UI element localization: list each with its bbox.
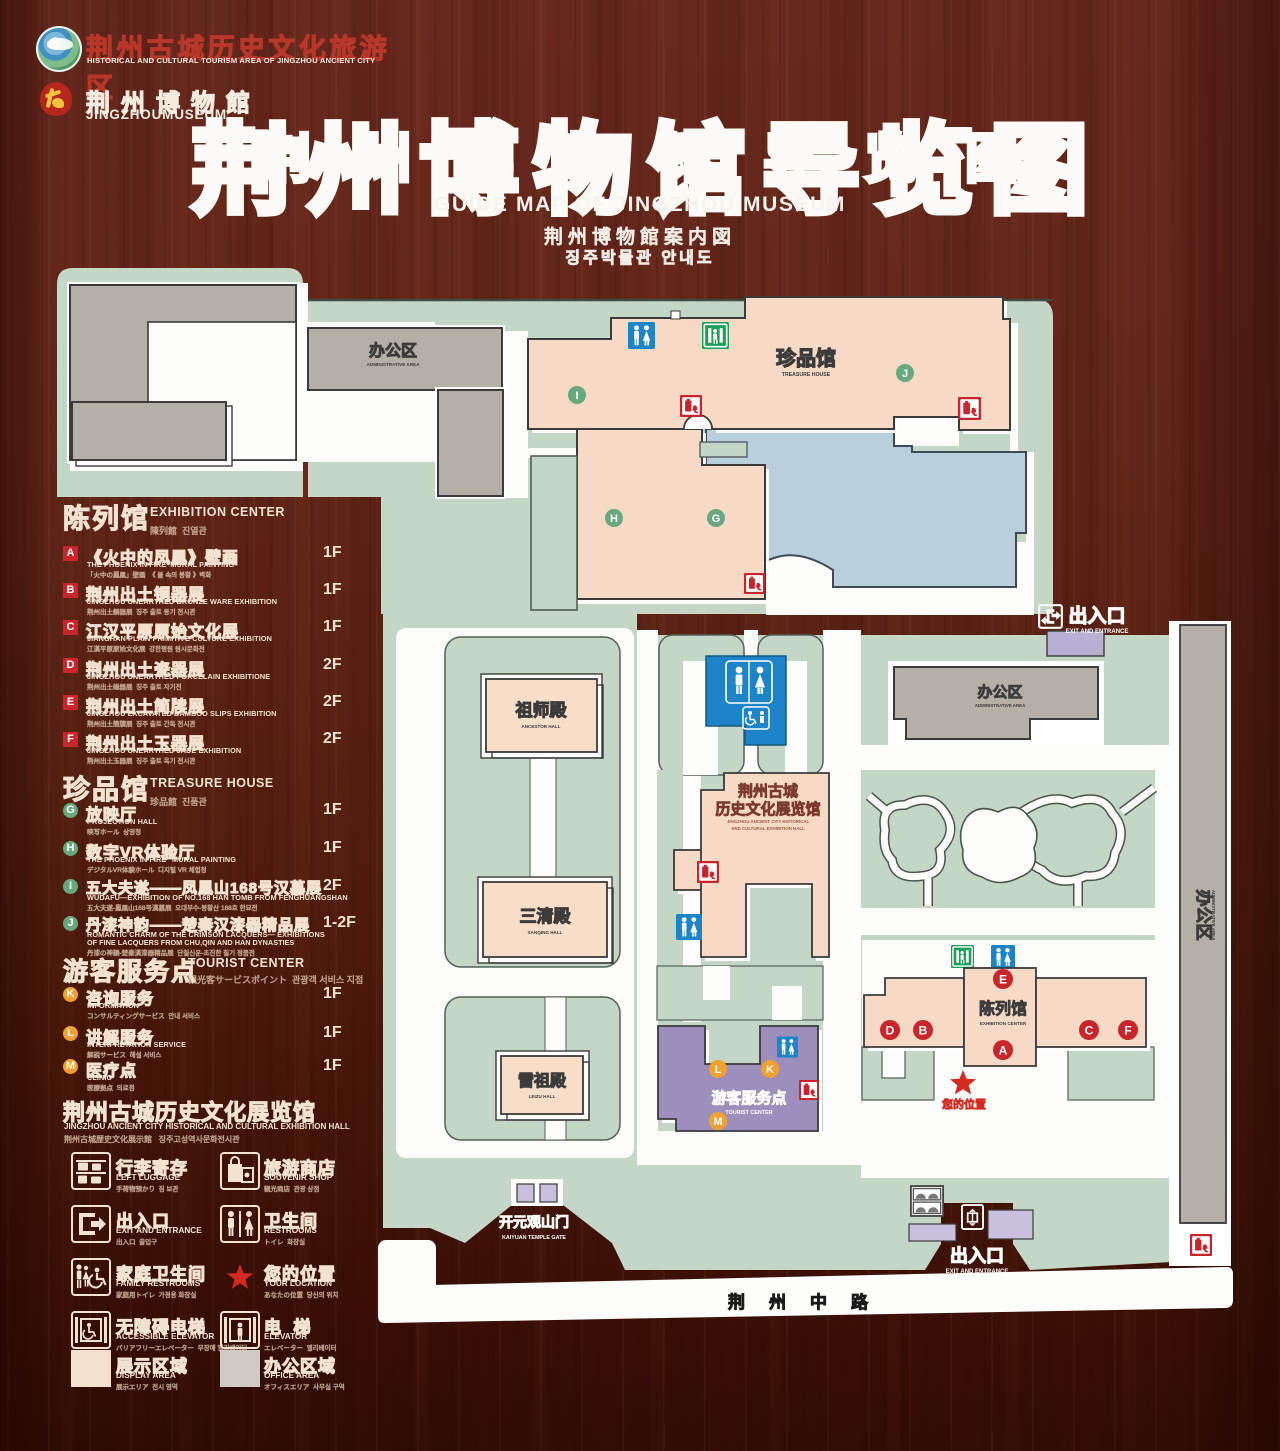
svg-text:珍品馆: 珍品馆 bbox=[776, 346, 836, 370]
svg-text:B: B bbox=[919, 1024, 928, 1038]
svg-text:办公区: 办公区 bbox=[369, 341, 417, 360]
svg-text:办公区: 办公区 bbox=[977, 683, 1022, 701]
svg-text:开元观山门: 开元观山门 bbox=[499, 1214, 569, 1230]
svg-text:ADMINISTRATIVE AREA: ADMINISTRATIVE AREA bbox=[367, 362, 421, 367]
svg-text:KAIYUAN TEMPLE GATE: KAIYUAN TEMPLE GATE bbox=[502, 1235, 566, 1241]
svg-text:D: D bbox=[886, 1024, 895, 1038]
svg-text:F: F bbox=[1124, 1024, 1131, 1038]
svg-text:I: I bbox=[575, 390, 578, 402]
svg-text:ANCESTOR HALL: ANCESTOR HALL bbox=[521, 724, 560, 729]
svg-text:AND CULTURAL EXHIBITION HALL: AND CULTURAL EXHIBITION HALL bbox=[731, 826, 805, 831]
svg-text:EXHIBITION CENTER: EXHIBITION CENTER bbox=[980, 1021, 1027, 1026]
svg-text:您的位置: 您的位置 bbox=[942, 1097, 986, 1111]
svg-text:TREASURE HOUSE: TREASURE HOUSE bbox=[782, 372, 831, 378]
svg-text:J: J bbox=[902, 368, 908, 380]
svg-text:ADMINISTRATIVE AREA: ADMINISTRATIVE AREA bbox=[975, 703, 1026, 708]
svg-text:三清殿: 三清殿 bbox=[520, 906, 572, 926]
svg-text:陈列馆: 陈列馆 bbox=[979, 999, 1027, 1018]
svg-text:办公区: 办公区 bbox=[1194, 890, 1214, 941]
svg-text:历史文化展览馆: 历史文化展览馆 bbox=[715, 800, 820, 818]
svg-text:荆州中路: 荆州中路 bbox=[728, 1292, 892, 1312]
svg-text:C: C bbox=[1085, 1024, 1094, 1038]
svg-text:出入口: 出入口 bbox=[950, 1245, 1004, 1266]
svg-text:TOURIST CENTER: TOURIST CENTER bbox=[725, 1110, 772, 1116]
svg-text:SANQING HALL: SANQING HALL bbox=[528, 930, 563, 935]
svg-text:荆州古城: 荆州古城 bbox=[738, 782, 798, 800]
svg-text:雷祖殿: 雷祖殿 bbox=[518, 1071, 567, 1090]
svg-text:游客服务点: 游客服务点 bbox=[711, 1089, 786, 1107]
svg-text:祖师殿: 祖师殿 bbox=[515, 700, 568, 720]
svg-text:G: G bbox=[712, 513, 721, 525]
svg-text:M: M bbox=[713, 1116, 722, 1128]
svg-text:LEIZU HALL: LEIZU HALL bbox=[529, 1094, 556, 1099]
svg-text:EXIT AND ENTRANCE: EXIT AND ENTRANCE bbox=[1066, 629, 1129, 635]
svg-text:K: K bbox=[766, 1064, 774, 1076]
svg-text:ADMINISTRATIVE AREA: ADMINISTRATIVE AREA bbox=[1211, 890, 1216, 941]
svg-text:E: E bbox=[999, 973, 1007, 987]
svg-text:JINGZHOU ANCIENT CITY HISTORIC: JINGZHOU ANCIENT CITY HISTORICAL bbox=[727, 819, 810, 824]
svg-text:L: L bbox=[715, 1064, 722, 1076]
svg-text:A: A bbox=[999, 1044, 1008, 1058]
svg-text:出入口: 出入口 bbox=[1068, 604, 1125, 627]
svg-text:H: H bbox=[610, 513, 618, 525]
